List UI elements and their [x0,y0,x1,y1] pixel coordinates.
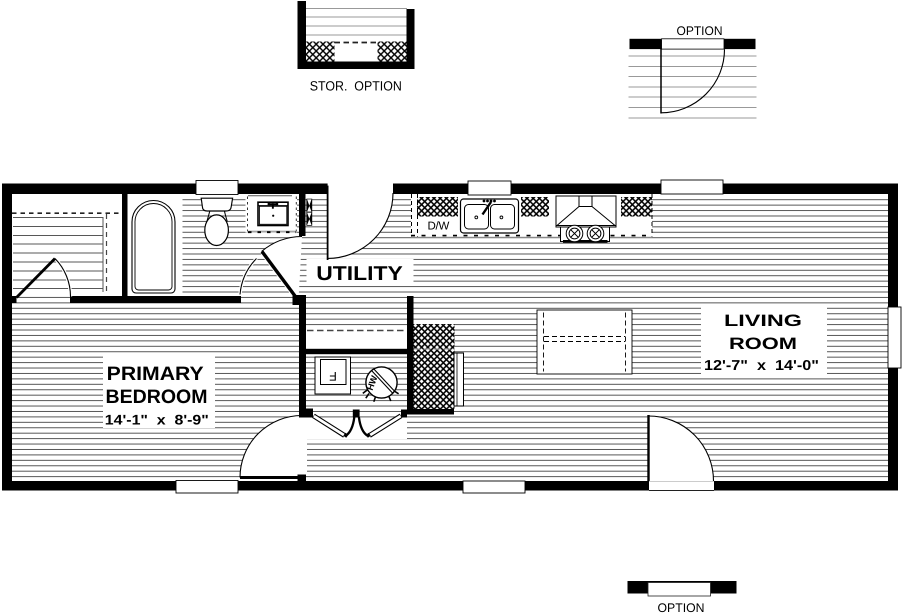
svg-text:PRIMARY: PRIMARY [107,363,204,385]
svg-text:D/W: D/W [428,221,450,233]
svg-text:OPTION: OPTION [677,24,723,38]
svg-text:BEDROOM: BEDROOM [106,386,208,408]
svg-text:12'-7" x 14'-0": 12'-7" x 14'-0" [704,358,819,374]
svg-text:14'-1" x 8'-9": 14'-1" x 8'-9" [105,412,209,428]
svg-text:F: F [329,369,337,383]
svg-text:LIVING: LIVING [724,312,802,330]
svg-text:ROOM: ROOM [729,335,797,353]
svg-text:UTILITY: UTILITY [316,263,403,285]
svg-text:STOR. OPTION: STOR. OPTION [310,79,402,94]
svg-text:OPTION: OPTION [658,601,705,613]
